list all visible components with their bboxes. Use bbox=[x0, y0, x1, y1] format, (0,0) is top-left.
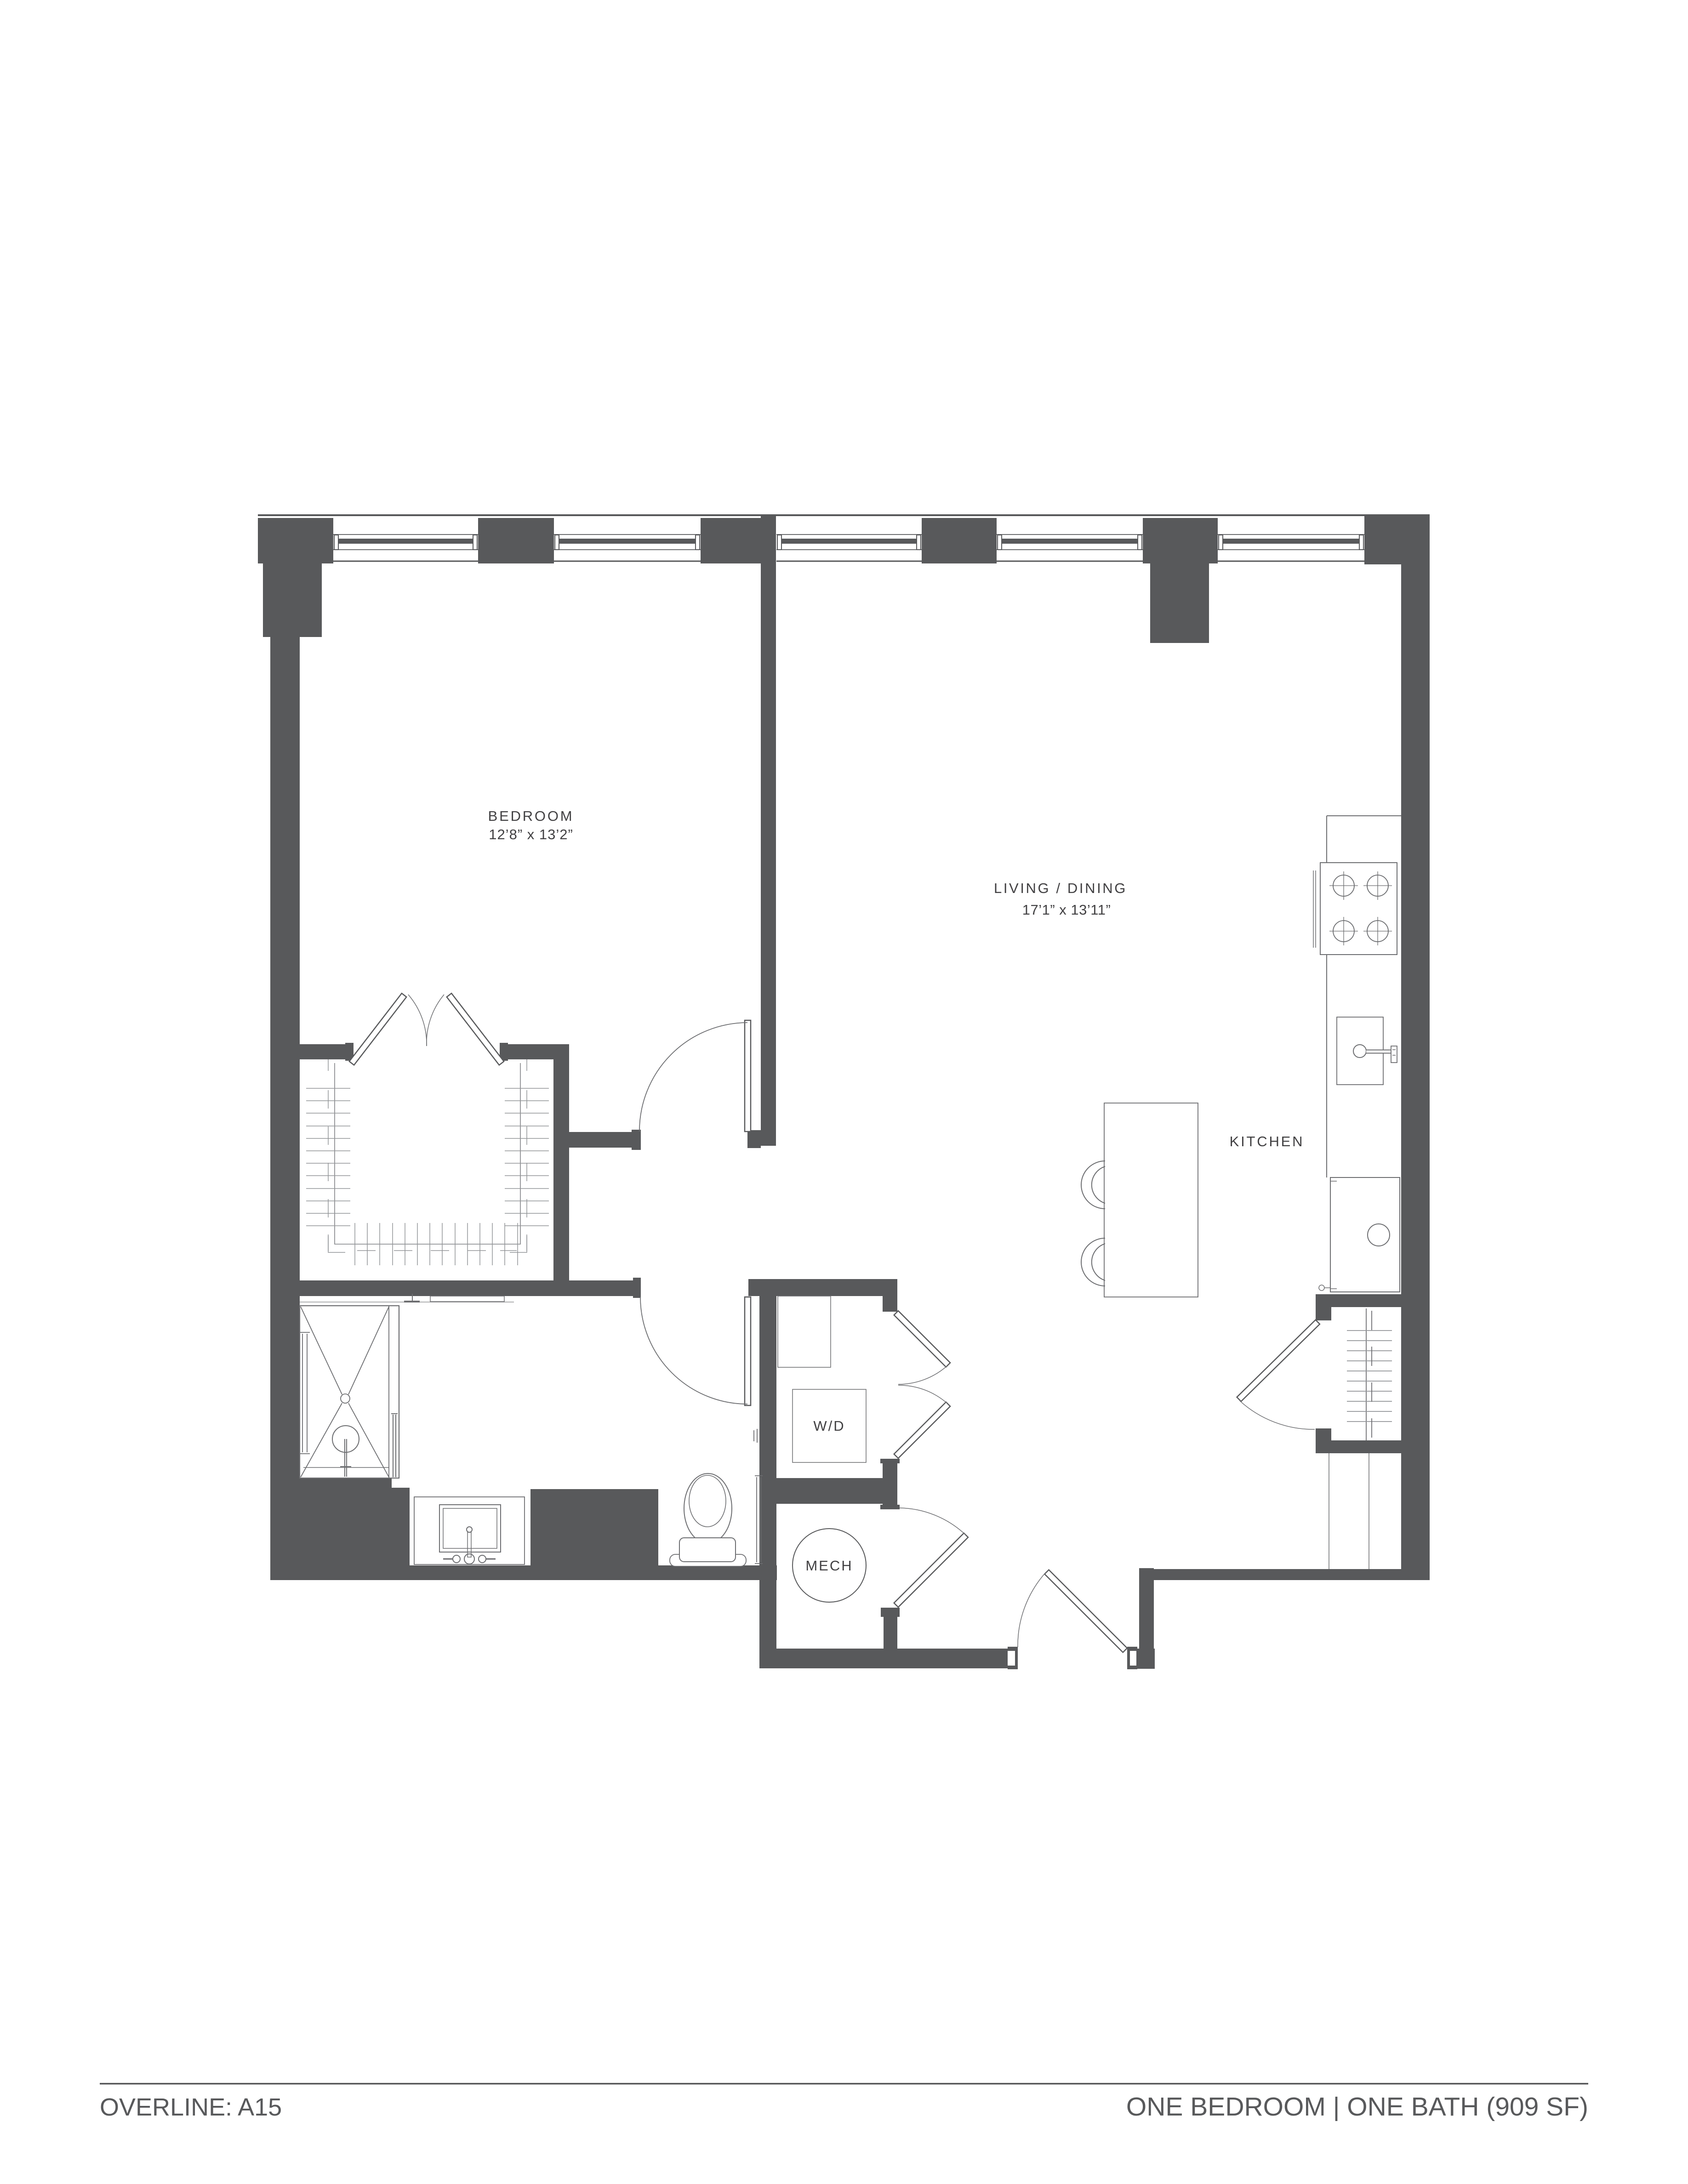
svg-text:ONE BEDROOM | ONE BATH (909 SF: ONE BEDROOM | ONE BATH (909 SF) bbox=[1126, 2092, 1588, 2121]
svg-text:12’8” x 13’2”: 12’8” x 13’2” bbox=[489, 826, 573, 842]
svg-text:MECH: MECH bbox=[805, 1558, 853, 1574]
svg-text:W/D: W/D bbox=[813, 1418, 845, 1434]
svg-text:OVERLINE: A15: OVERLINE: A15 bbox=[100, 2093, 282, 2121]
svg-text:KITCHEN: KITCHEN bbox=[1230, 1133, 1305, 1149]
svg-text:BEDROOM: BEDROOM bbox=[488, 808, 574, 824]
svg-text:LIVING / DINING: LIVING / DINING bbox=[994, 880, 1127, 896]
svg-text:17’1” x 13’11”: 17’1” x 13’11” bbox=[1022, 902, 1111, 918]
